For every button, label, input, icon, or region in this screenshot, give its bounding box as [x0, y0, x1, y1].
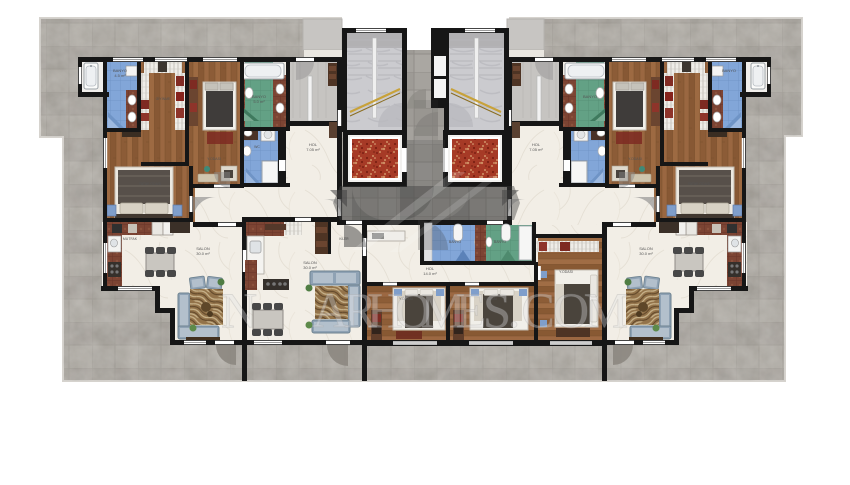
svg-text:7.05 m²: 7.05 m²	[306, 147, 320, 152]
svg-text:14.0 m²: 14.0 m²	[423, 271, 437, 276]
svg-text:Y.ODASI: Y.ODASI	[628, 157, 642, 161]
svg-text:30.0 m²: 30.0 m²	[196, 251, 210, 256]
svg-text:WC: WC	[254, 145, 260, 149]
svg-text:E: E	[456, 282, 487, 338]
svg-text:BANYO: BANYO	[722, 68, 736, 73]
svg-text:M: M	[584, 282, 628, 338]
svg-text:C: C	[521, 282, 554, 338]
svg-text:MUTFAK: MUTFAK	[123, 237, 138, 241]
svg-text:Y.ODASI: Y.ODASI	[559, 270, 573, 274]
svg-text:Y.ODASI: Y.ODASI	[207, 157, 221, 161]
svg-text:BANYO: BANYO	[449, 240, 462, 244]
svg-text:5.0 m²: 5.0 m²	[253, 99, 265, 104]
svg-text:4.5 m²: 4.5 m²	[114, 73, 126, 78]
svg-text:7.05 m²: 7.05 m²	[529, 147, 543, 152]
svg-text:S: S	[483, 282, 511, 338]
svg-text:GİYİNME: GİYİNME	[156, 96, 171, 101]
svg-text:YATAK ODASI: YATAK ODASI	[688, 182, 711, 186]
svg-text:30.0 m²: 30.0 m²	[639, 251, 653, 256]
svg-text:YATAK ODASI: YATAK ODASI	[139, 182, 162, 186]
svg-text:N: N	[221, 282, 257, 338]
svg-text:BANYO: BANYO	[494, 240, 507, 244]
svg-text:.: .	[508, 282, 521, 338]
svg-text:30.0 m²: 30.0 m²	[303, 265, 317, 270]
svg-text:BANYO: BANYO	[583, 94, 597, 99]
